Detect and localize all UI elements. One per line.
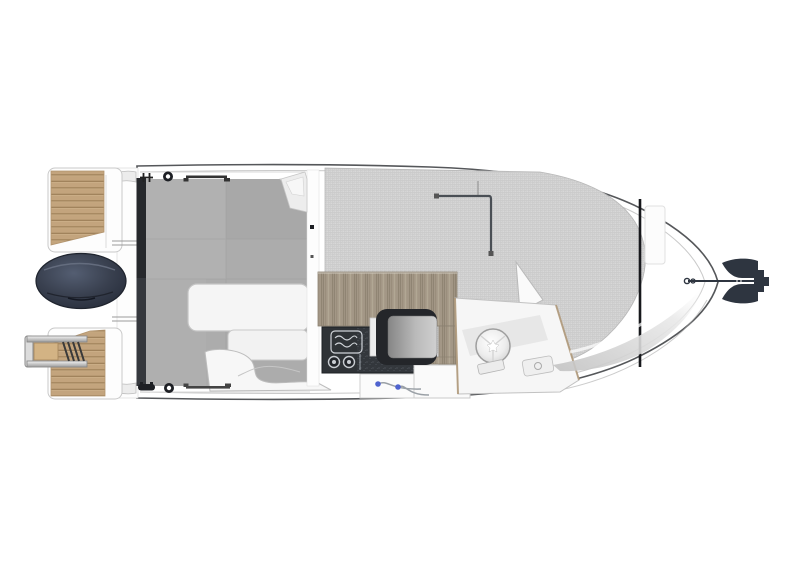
storage-drawers (360, 374, 414, 398)
anchor-pin (736, 280, 738, 282)
transom-bulkhead-upper (137, 178, 147, 278)
anchor-pin (740, 280, 742, 282)
cockpit-bench (188, 284, 309, 331)
floor-panel (146, 179, 226, 279)
swim-platform-port (48, 168, 122, 252)
bulkhead-strip (307, 170, 319, 386)
rail-foot (434, 194, 439, 199)
knob-center (332, 360, 336, 364)
cleat-horn (150, 382, 153, 385)
door-hinge (311, 255, 314, 258)
rail-foot (489, 251, 494, 256)
rail-foot (184, 178, 189, 182)
anchor-head (754, 270, 764, 292)
ladder-rail-top (27, 336, 87, 342)
anchor-crossbar (763, 277, 769, 286)
seat-cushion (388, 316, 437, 358)
hand-rail-bottom (186, 386, 230, 389)
drawer-knob (375, 381, 381, 387)
ring-bollard-center (166, 174, 170, 178)
teak-deck (51, 171, 104, 245)
drawer-knob (395, 384, 401, 390)
helm-seat (370, 309, 437, 365)
boat-deck-plan-canvas (0, 0, 800, 565)
rail-foot (184, 384, 189, 388)
rail-foot (225, 384, 231, 388)
cleat-horn (140, 382, 143, 385)
boat-deck-plan (0, 0, 800, 565)
rail-foot (224, 178, 230, 182)
knob-center (347, 360, 351, 364)
hand-rail-top (186, 176, 227, 179)
foredeck-hatch (645, 206, 665, 264)
door-hinge (310, 225, 314, 229)
ring-bollard-center (167, 386, 171, 390)
ladder-rail-bottom (27, 361, 87, 367)
ladder-step (34, 343, 58, 360)
